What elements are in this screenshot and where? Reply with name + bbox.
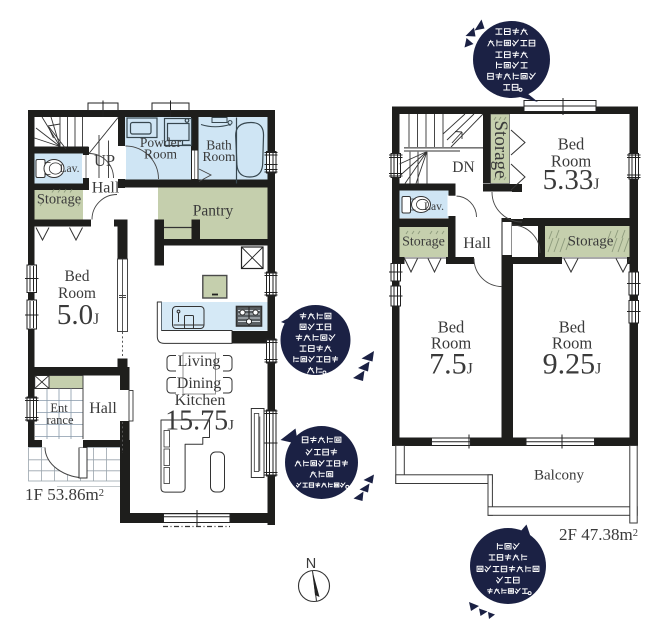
- svg-text:Lav.: Lav.: [424, 201, 444, 213]
- svg-text:Pantry: Pantry: [193, 203, 234, 220]
- svg-text:15.75J: 15.75J: [165, 406, 234, 437]
- svg-text:rance: rance: [46, 413, 74, 427]
- svg-text:Dining: Dining: [177, 375, 221, 392]
- svg-text:7.5J: 7.5J: [429, 348, 473, 381]
- svg-text:Hall: Hall: [92, 180, 120, 197]
- svg-text:9.25J: 9.25J: [543, 348, 602, 381]
- svg-text:UP: UP: [94, 151, 115, 170]
- svg-text:Storage: Storage: [402, 235, 445, 250]
- svg-text:Storage: Storage: [37, 192, 81, 208]
- svg-text:2F 47.38m2: 2F 47.38m2: [559, 525, 638, 544]
- svg-text:Hall: Hall: [89, 400, 117, 417]
- svg-text:DN: DN: [452, 159, 474, 176]
- svg-text:N: N: [306, 556, 316, 572]
- svg-text:Hall: Hall: [463, 235, 491, 252]
- svg-text:5.33J: 5.33J: [543, 164, 600, 196]
- svg-text:5.0J: 5.0J: [57, 299, 99, 331]
- svg-text:Storage: Storage: [490, 120, 511, 178]
- svg-text:1F 53.86m2: 1F 53.86m2: [25, 485, 104, 504]
- svg-text:Storage: Storage: [568, 234, 614, 250]
- svg-text:Balcony: Balcony: [534, 468, 584, 484]
- svg-text:Bed: Bed: [65, 268, 90, 285]
- svg-text:Room: Room: [202, 149, 236, 164]
- svg-text:Room: Room: [144, 147, 178, 162]
- svg-text:Lav.: Lav.: [59, 163, 79, 175]
- svg-text:Living: Living: [178, 353, 221, 370]
